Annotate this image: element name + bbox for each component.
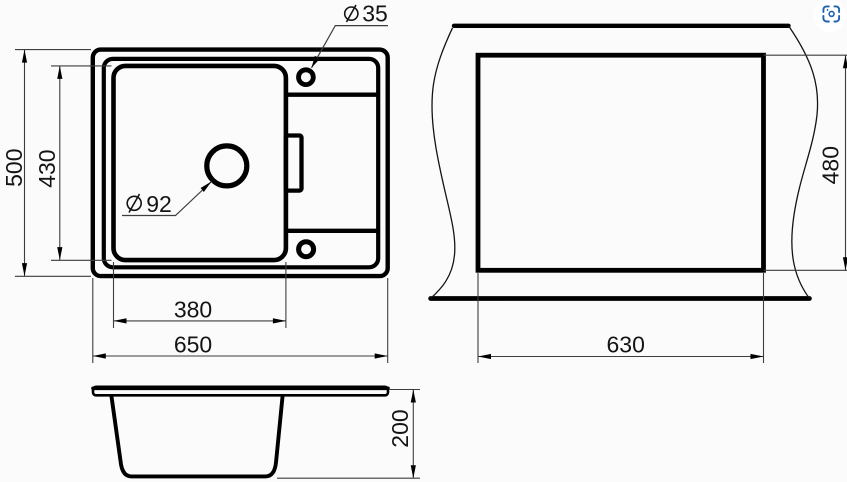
svg-text:430: 430 [34,149,60,187]
svg-text:92: 92 [146,191,172,217]
svg-text:480: 480 [818,146,844,184]
svg-text:200: 200 [387,409,413,447]
svg-text:630: 630 [607,332,645,358]
svg-text:500: 500 [1,149,27,187]
svg-text:380: 380 [174,297,212,323]
svg-text:650: 650 [174,331,212,357]
svg-text:35: 35 [362,1,388,27]
